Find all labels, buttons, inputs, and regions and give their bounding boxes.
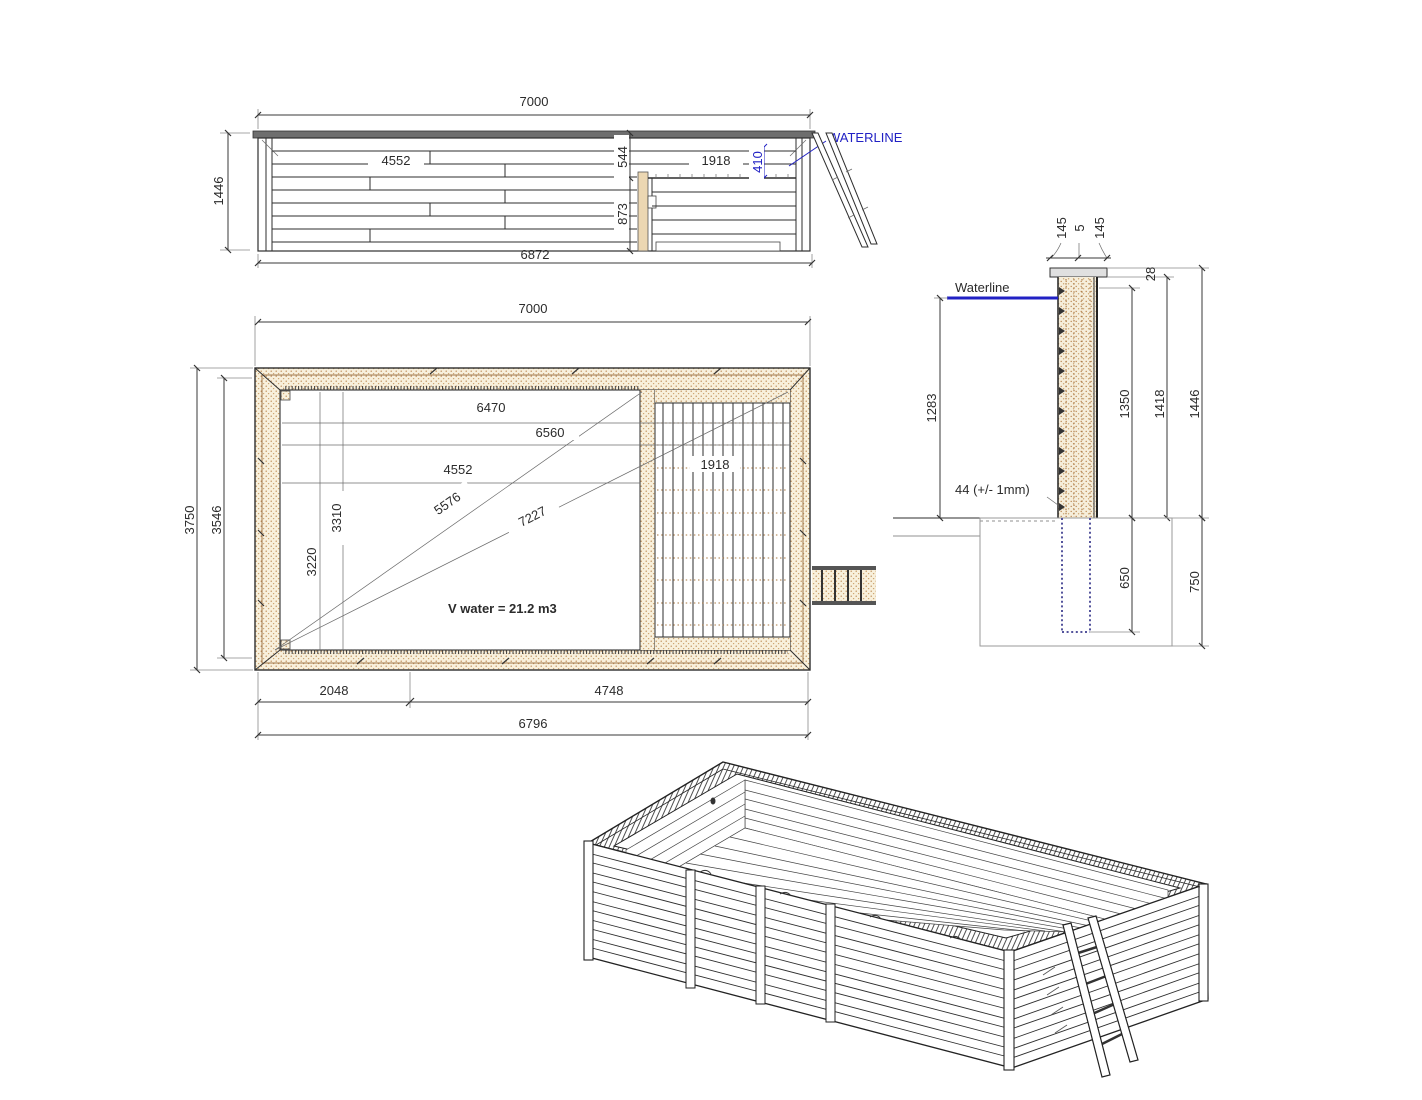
side-dim-1918: 1918 — [702, 153, 731, 168]
sec-waterline-label: Waterline — [955, 280, 1009, 295]
sec-post-footing — [1062, 518, 1090, 632]
side-dim-544: 544 — [615, 146, 630, 168]
sec-dim-750: 750 — [1187, 571, 1202, 593]
sec-dim-5: 5 — [1072, 224, 1087, 231]
sec-plank-note: 44 (+/- 1mm) — [955, 482, 1030, 497]
drawing-canvas: 7000 — [0, 0, 1422, 1100]
sec-dim-1418: 1418 — [1152, 390, 1167, 419]
sec-dim-28: 28 — [1143, 267, 1158, 281]
plan-volume-label: V water = 21.2 m3 — [448, 601, 557, 616]
plan-dim-4552: 4552 — [444, 462, 473, 477]
plan-dim-6560: 6560 — [536, 425, 565, 440]
sec-dim-1446: 1446 — [1187, 390, 1202, 419]
plan-dim-3310: 3310 — [329, 504, 344, 533]
plan-dim-7000: 7000 — [519, 301, 548, 316]
side-dim-6872: 6872 — [521, 247, 550, 262]
side-dim-7000: 7000 — [520, 94, 549, 109]
plan-dim-3750: 3750 — [182, 506, 197, 535]
plan-dim-6470: 6470 — [477, 400, 506, 415]
sec-dim-145l: 145 — [1054, 217, 1069, 239]
sec-dim-1350: 1350 — [1117, 390, 1132, 419]
side-dim-1446: 1446 — [211, 177, 226, 206]
side-dim-873: 873 — [615, 203, 630, 225]
sec-dim-650: 650 — [1117, 567, 1132, 589]
side-dim-4552: 4552 — [382, 153, 411, 168]
side-waterline-label: WATERLINE — [828, 130, 903, 145]
sec-dim-145r: 145 — [1092, 217, 1107, 239]
plan-dim-3220: 3220 — [304, 548, 319, 577]
plan-dim-2048: 2048 — [320, 683, 349, 698]
section-view: 145 5 145 Waterline 1283 28 1350 1418 14… — [885, 205, 1225, 665]
plan-ladder — [812, 566, 876, 605]
plan-dim-6796: 6796 — [519, 716, 548, 731]
side-ladder — [812, 133, 877, 247]
side-dim-410: 410 — [750, 151, 765, 173]
plan-dim-4748: 4748 — [595, 683, 624, 698]
plan-view: 7000 — [180, 300, 895, 748]
side-elevation-view: 7000 — [185, 80, 915, 275]
plan-dim-1918: 1918 — [701, 457, 730, 472]
plan-dim-3546: 3546 — [209, 506, 224, 535]
isometric-view — [555, 745, 1235, 1095]
sec-dim-1283: 1283 — [924, 394, 939, 423]
